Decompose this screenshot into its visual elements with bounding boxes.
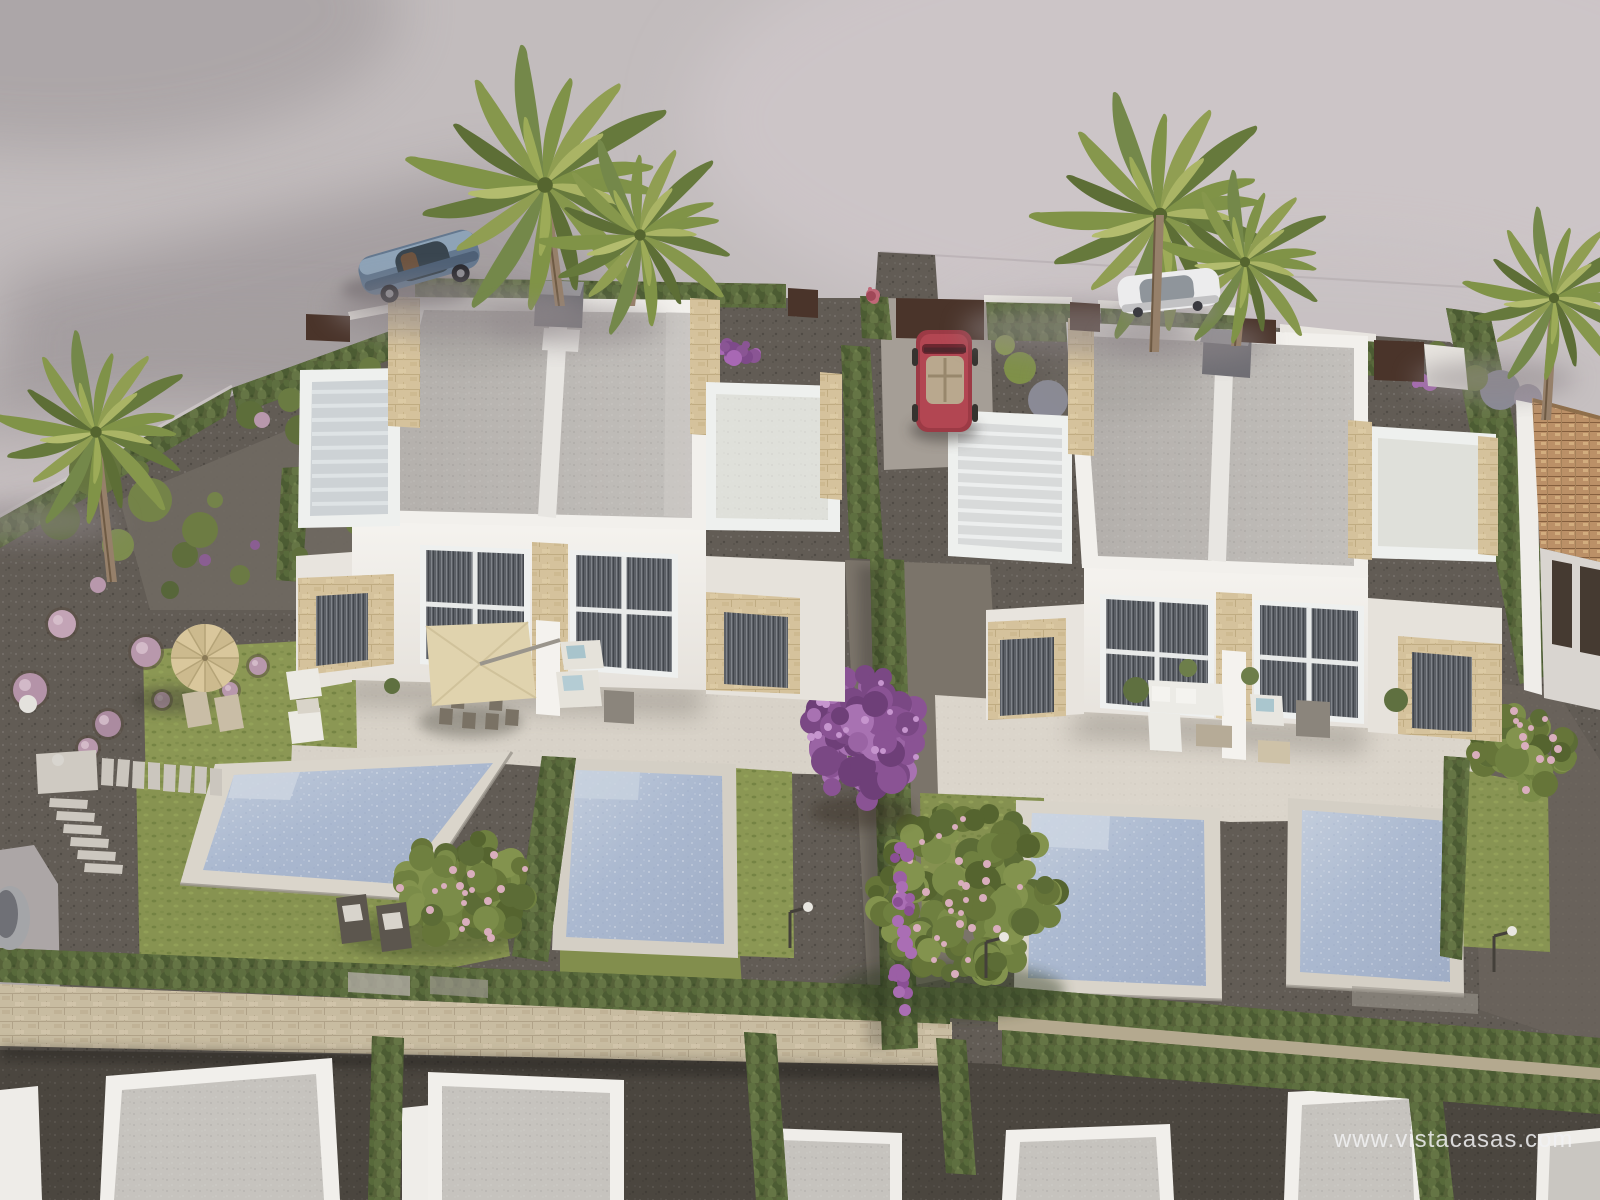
svg-text:www.vistacasas.com: www.vistacasas.com [1333,1126,1573,1153]
